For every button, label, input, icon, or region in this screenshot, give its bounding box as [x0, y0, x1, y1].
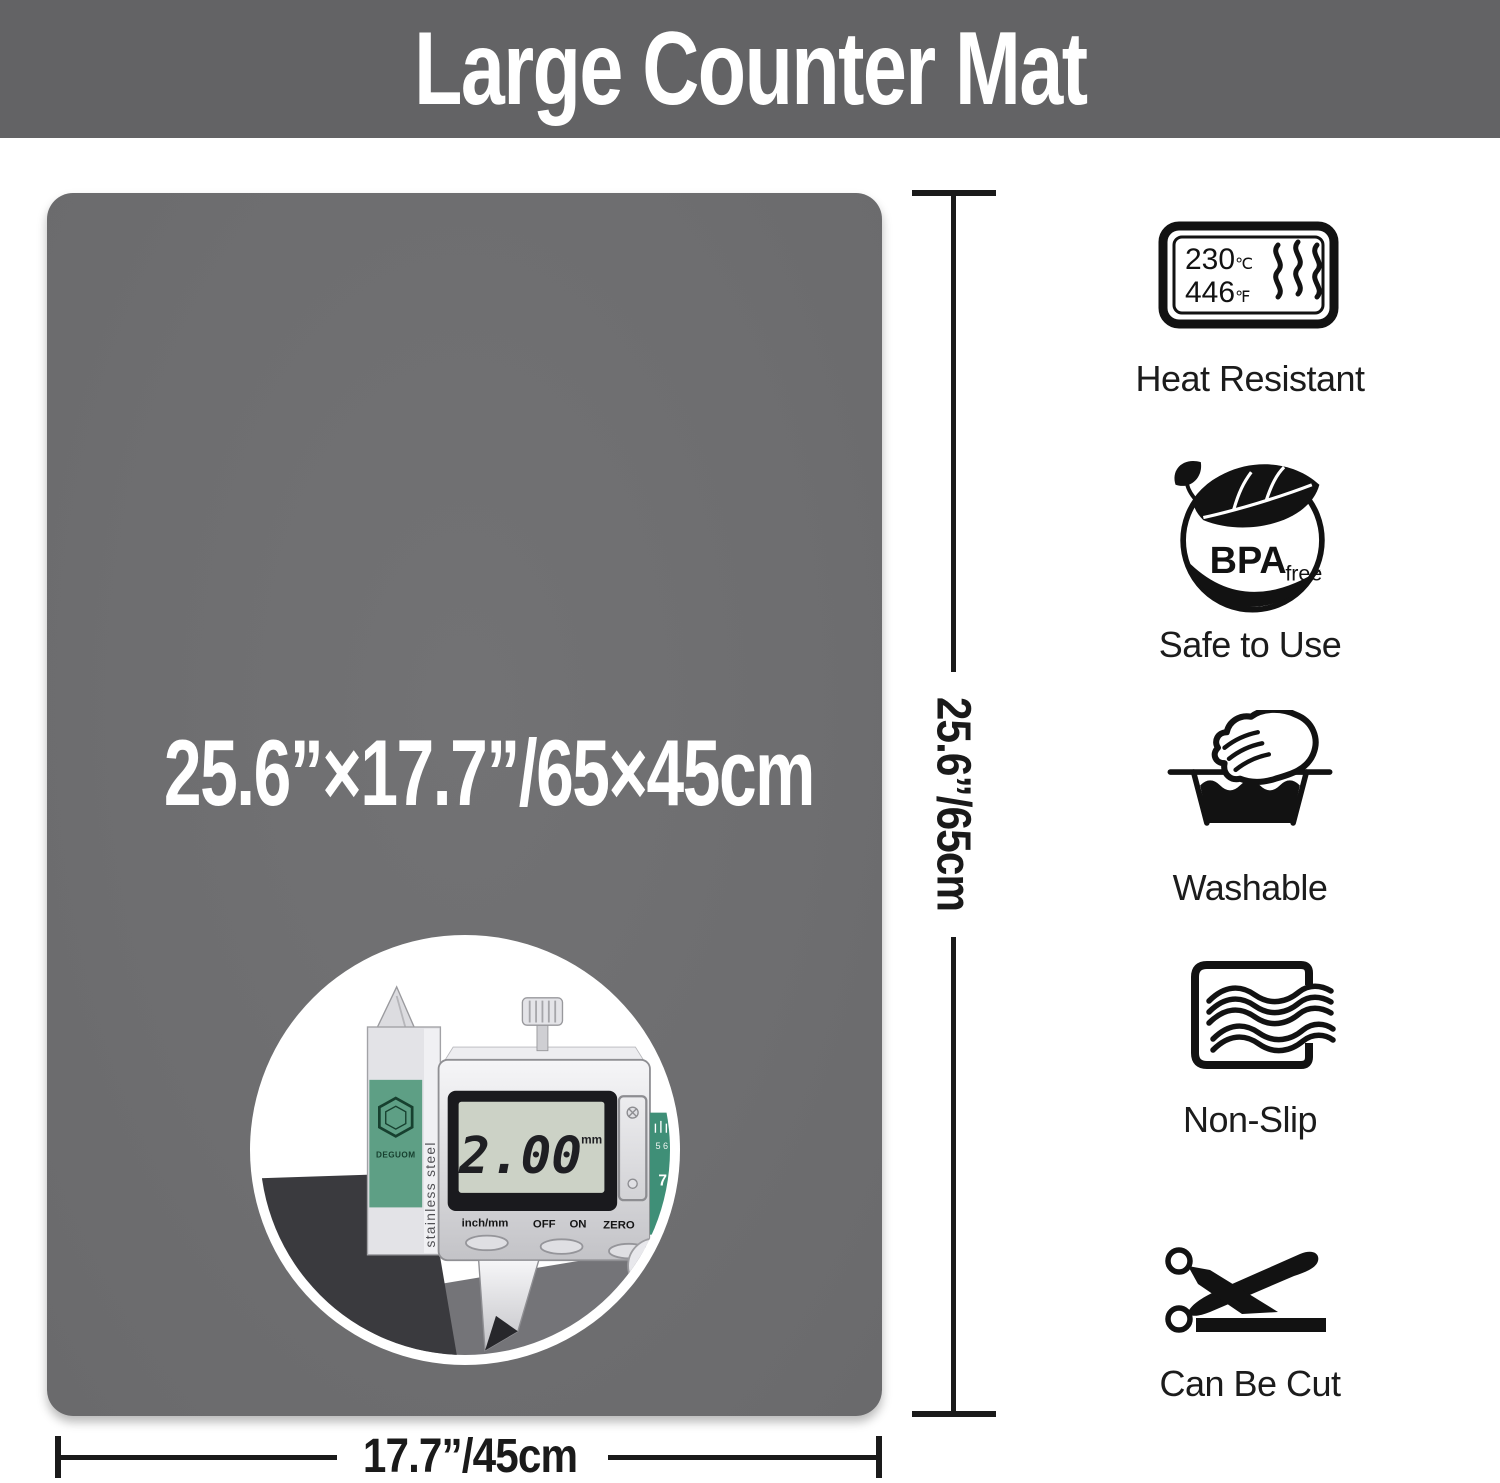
- washable-icon: [1167, 710, 1333, 843]
- width-dim-line-left: [61, 1455, 337, 1460]
- caliper-inset-photo: DEGUOM stainless steel 2.00 mm inch/: [250, 935, 680, 1365]
- bpa-badge-text: BPA: [1210, 540, 1287, 582]
- off-button-label: OFF: [533, 1218, 556, 1230]
- feature-label-heat: Heat Resistant: [1135, 357, 1364, 401]
- height-dim-line-upper: [951, 190, 956, 672]
- beam-text: stainless steel: [423, 1141, 438, 1247]
- feature-label-nonslip: Non-Slip: [1183, 1098, 1317, 1142]
- screw: [628, 1179, 637, 1188]
- caliper-photo-area: DEGUOM stainless steel 2.00 mm inch/: [260, 945, 670, 1355]
- svg-text:446℉: 446℉: [1185, 276, 1250, 309]
- width-dim-line-right: [608, 1455, 880, 1460]
- water: [1200, 780, 1300, 823]
- lcd-unit: mm: [581, 1133, 602, 1147]
- height-dim-bottom-cap: [912, 1411, 996, 1417]
- height-dim-label: 25.6”/65cm: [926, 697, 981, 911]
- width-dim-label: 17.7”/45cm: [363, 1433, 577, 1481]
- hand: [1215, 710, 1316, 782]
- height-dim-line-lower: [951, 937, 956, 1414]
- can-be-cut-icon: [1158, 1240, 1333, 1340]
- scale-number-big: 7: [658, 1173, 667, 1190]
- counter-mat: 25.6”×17.7”/65×45cm 0.08”/2mm: [47, 193, 882, 1416]
- heat-resistant-icon: 230℃ 446℉: [1157, 220, 1340, 330]
- bpa-badge-sub: free: [1285, 562, 1322, 586]
- on-button-label: ON: [569, 1218, 586, 1230]
- zero-button-label: ZERO: [603, 1219, 635, 1231]
- non-slip-icon: [1183, 955, 1337, 1075]
- scissor-handle: [1168, 1250, 1190, 1272]
- feature-label-washable: Washable: [1173, 866, 1328, 910]
- width-dim-right-cap: [876, 1436, 882, 1478]
- mat-size-label: 25.6”×17.7”/65×45cm: [164, 726, 765, 820]
- svg-text:230℃: 230℃: [1185, 243, 1253, 276]
- heat-waves: [1276, 242, 1320, 297]
- scissor-handle: [1168, 1308, 1190, 1330]
- feature-label-safe: Safe to Use: [1159, 623, 1342, 667]
- cut-surface: [1196, 1318, 1326, 1332]
- feature-label-cut: Can Be Cut: [1159, 1362, 1340, 1406]
- page-title: Large Counter Mat: [414, 10, 1086, 129]
- scale-numbers-small: 5 6: [655, 1141, 668, 1151]
- lcd-reading: 2.00: [458, 1127, 582, 1186]
- thumb-screw-stem: [537, 1022, 548, 1051]
- bpa-free-icon: BPA free: [1168, 452, 1332, 616]
- slip-waves: [1209, 986, 1333, 1050]
- banner: Large Counter Mat: [0, 0, 1500, 138]
- brand-text: DEGUOM: [376, 1150, 416, 1159]
- caliper-jaw-spike: [377, 987, 415, 1029]
- caliper-illustration: DEGUOM stainless steel 2.00 mm inch/: [260, 945, 670, 1355]
- mode-button-label: inch/mm: [462, 1218, 509, 1230]
